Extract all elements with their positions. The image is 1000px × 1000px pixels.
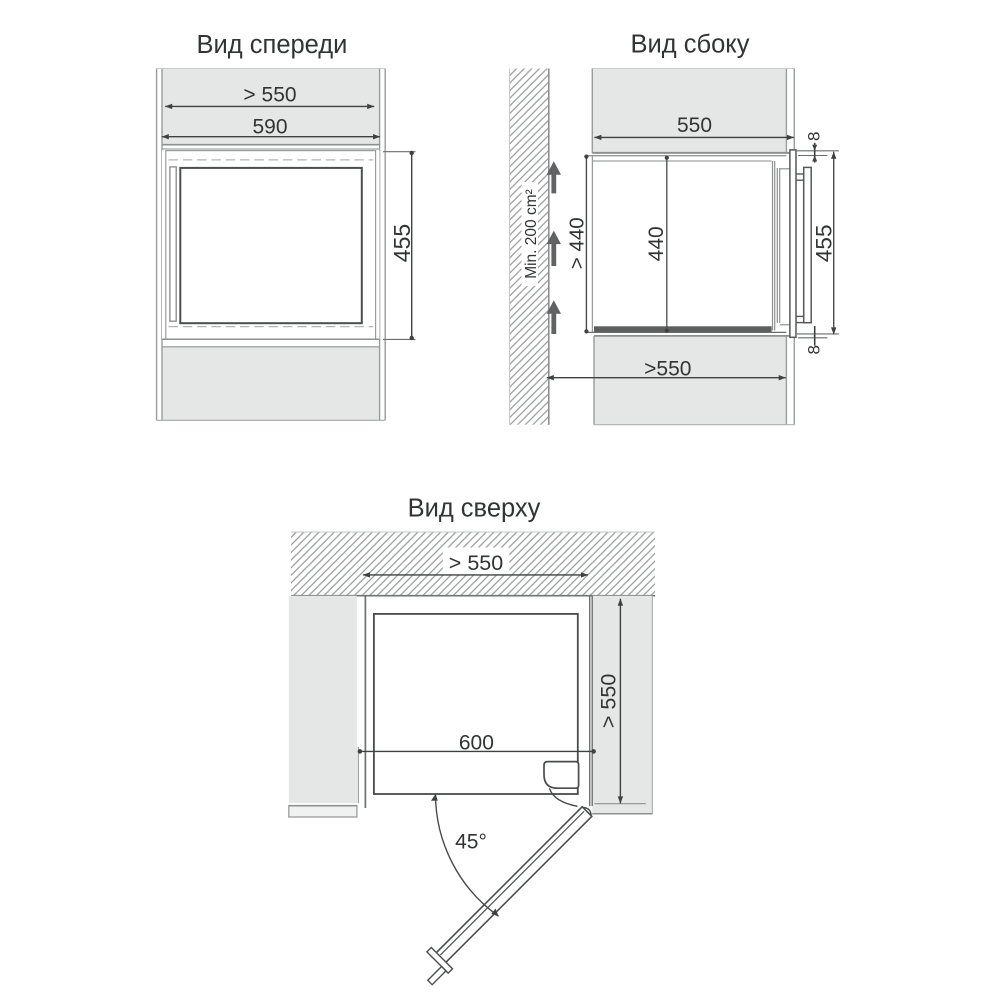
svg-text:> 550: > 550 — [597, 674, 621, 728]
svg-text:440: 440 — [645, 226, 668, 261]
svg-text:45°: 45° — [455, 831, 487, 854]
svg-text:Вид сбоку: Вид сбоку — [631, 31, 750, 59]
svg-text:Вид спереди: Вид спереди — [197, 31, 348, 59]
svg-text:590: 590 — [252, 115, 287, 138]
svg-text:455: 455 — [812, 225, 837, 263]
svg-text:8: 8 — [805, 345, 824, 354]
svg-text:Вид сверху: Вид сверху — [408, 495, 541, 523]
svg-text:> 440: > 440 — [565, 217, 588, 269]
svg-text:8: 8 — [805, 131, 824, 140]
svg-text:>550: >550 — [644, 358, 691, 381]
svg-text:Min. 200 cm²: Min. 200 cm² — [523, 189, 540, 279]
svg-text:> 550: > 550 — [243, 83, 296, 106]
svg-text:550: 550 — [677, 114, 712, 137]
svg-text:> 550: > 550 — [449, 551, 503, 575]
svg-text:455: 455 — [389, 224, 415, 262]
svg-text:600: 600 — [459, 732, 494, 755]
